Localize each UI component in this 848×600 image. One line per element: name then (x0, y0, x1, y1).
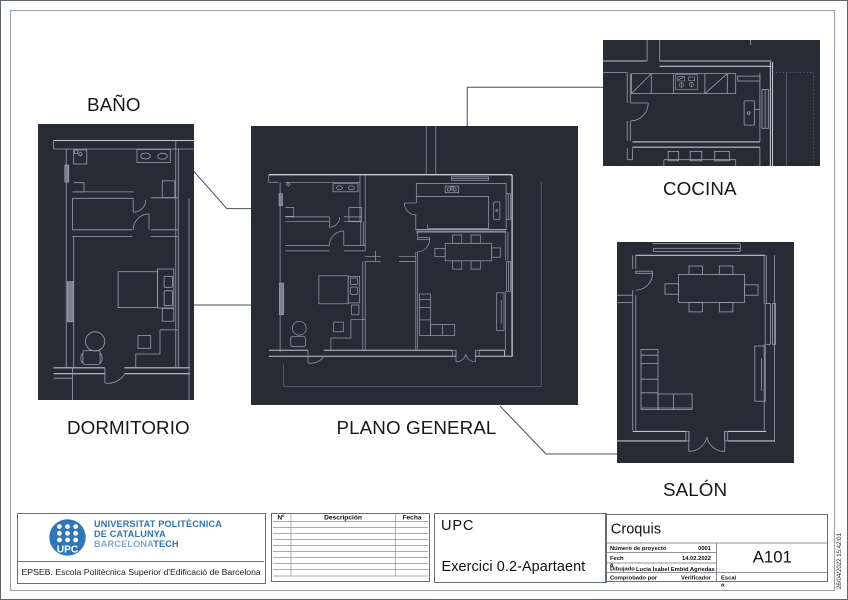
svg-text:Lucia Isabel Embid Agriedas: Lucia Isabel Embid Agriedas (636, 567, 715, 573)
svg-text:Fecha: Fecha (402, 515, 421, 522)
svg-text:14.02.2022: 14.02.2022 (682, 556, 711, 562)
svg-text:A101: A101 (753, 548, 792, 567)
svg-text:Dibujado: Dibujado (610, 567, 635, 573)
svg-text:Escal: Escal (721, 576, 737, 582)
svg-text:Croquis: Croquis (611, 522, 661, 538)
svg-text:Descripción: Descripción (324, 515, 362, 522)
svg-text:Comprobado por: Comprobado por (610, 576, 658, 582)
svg-text:UPC: UPC (57, 545, 79, 556)
svg-text:Fech: Fech (610, 556, 624, 562)
svg-text:0001: 0001 (698, 546, 712, 552)
svg-text:Número de proyecto: Número de proyecto (610, 546, 667, 552)
svg-text:Nº: Nº (277, 515, 285, 522)
svg-text:a: a (721, 583, 725, 589)
svg-text:Verificador: Verificador (681, 576, 712, 582)
